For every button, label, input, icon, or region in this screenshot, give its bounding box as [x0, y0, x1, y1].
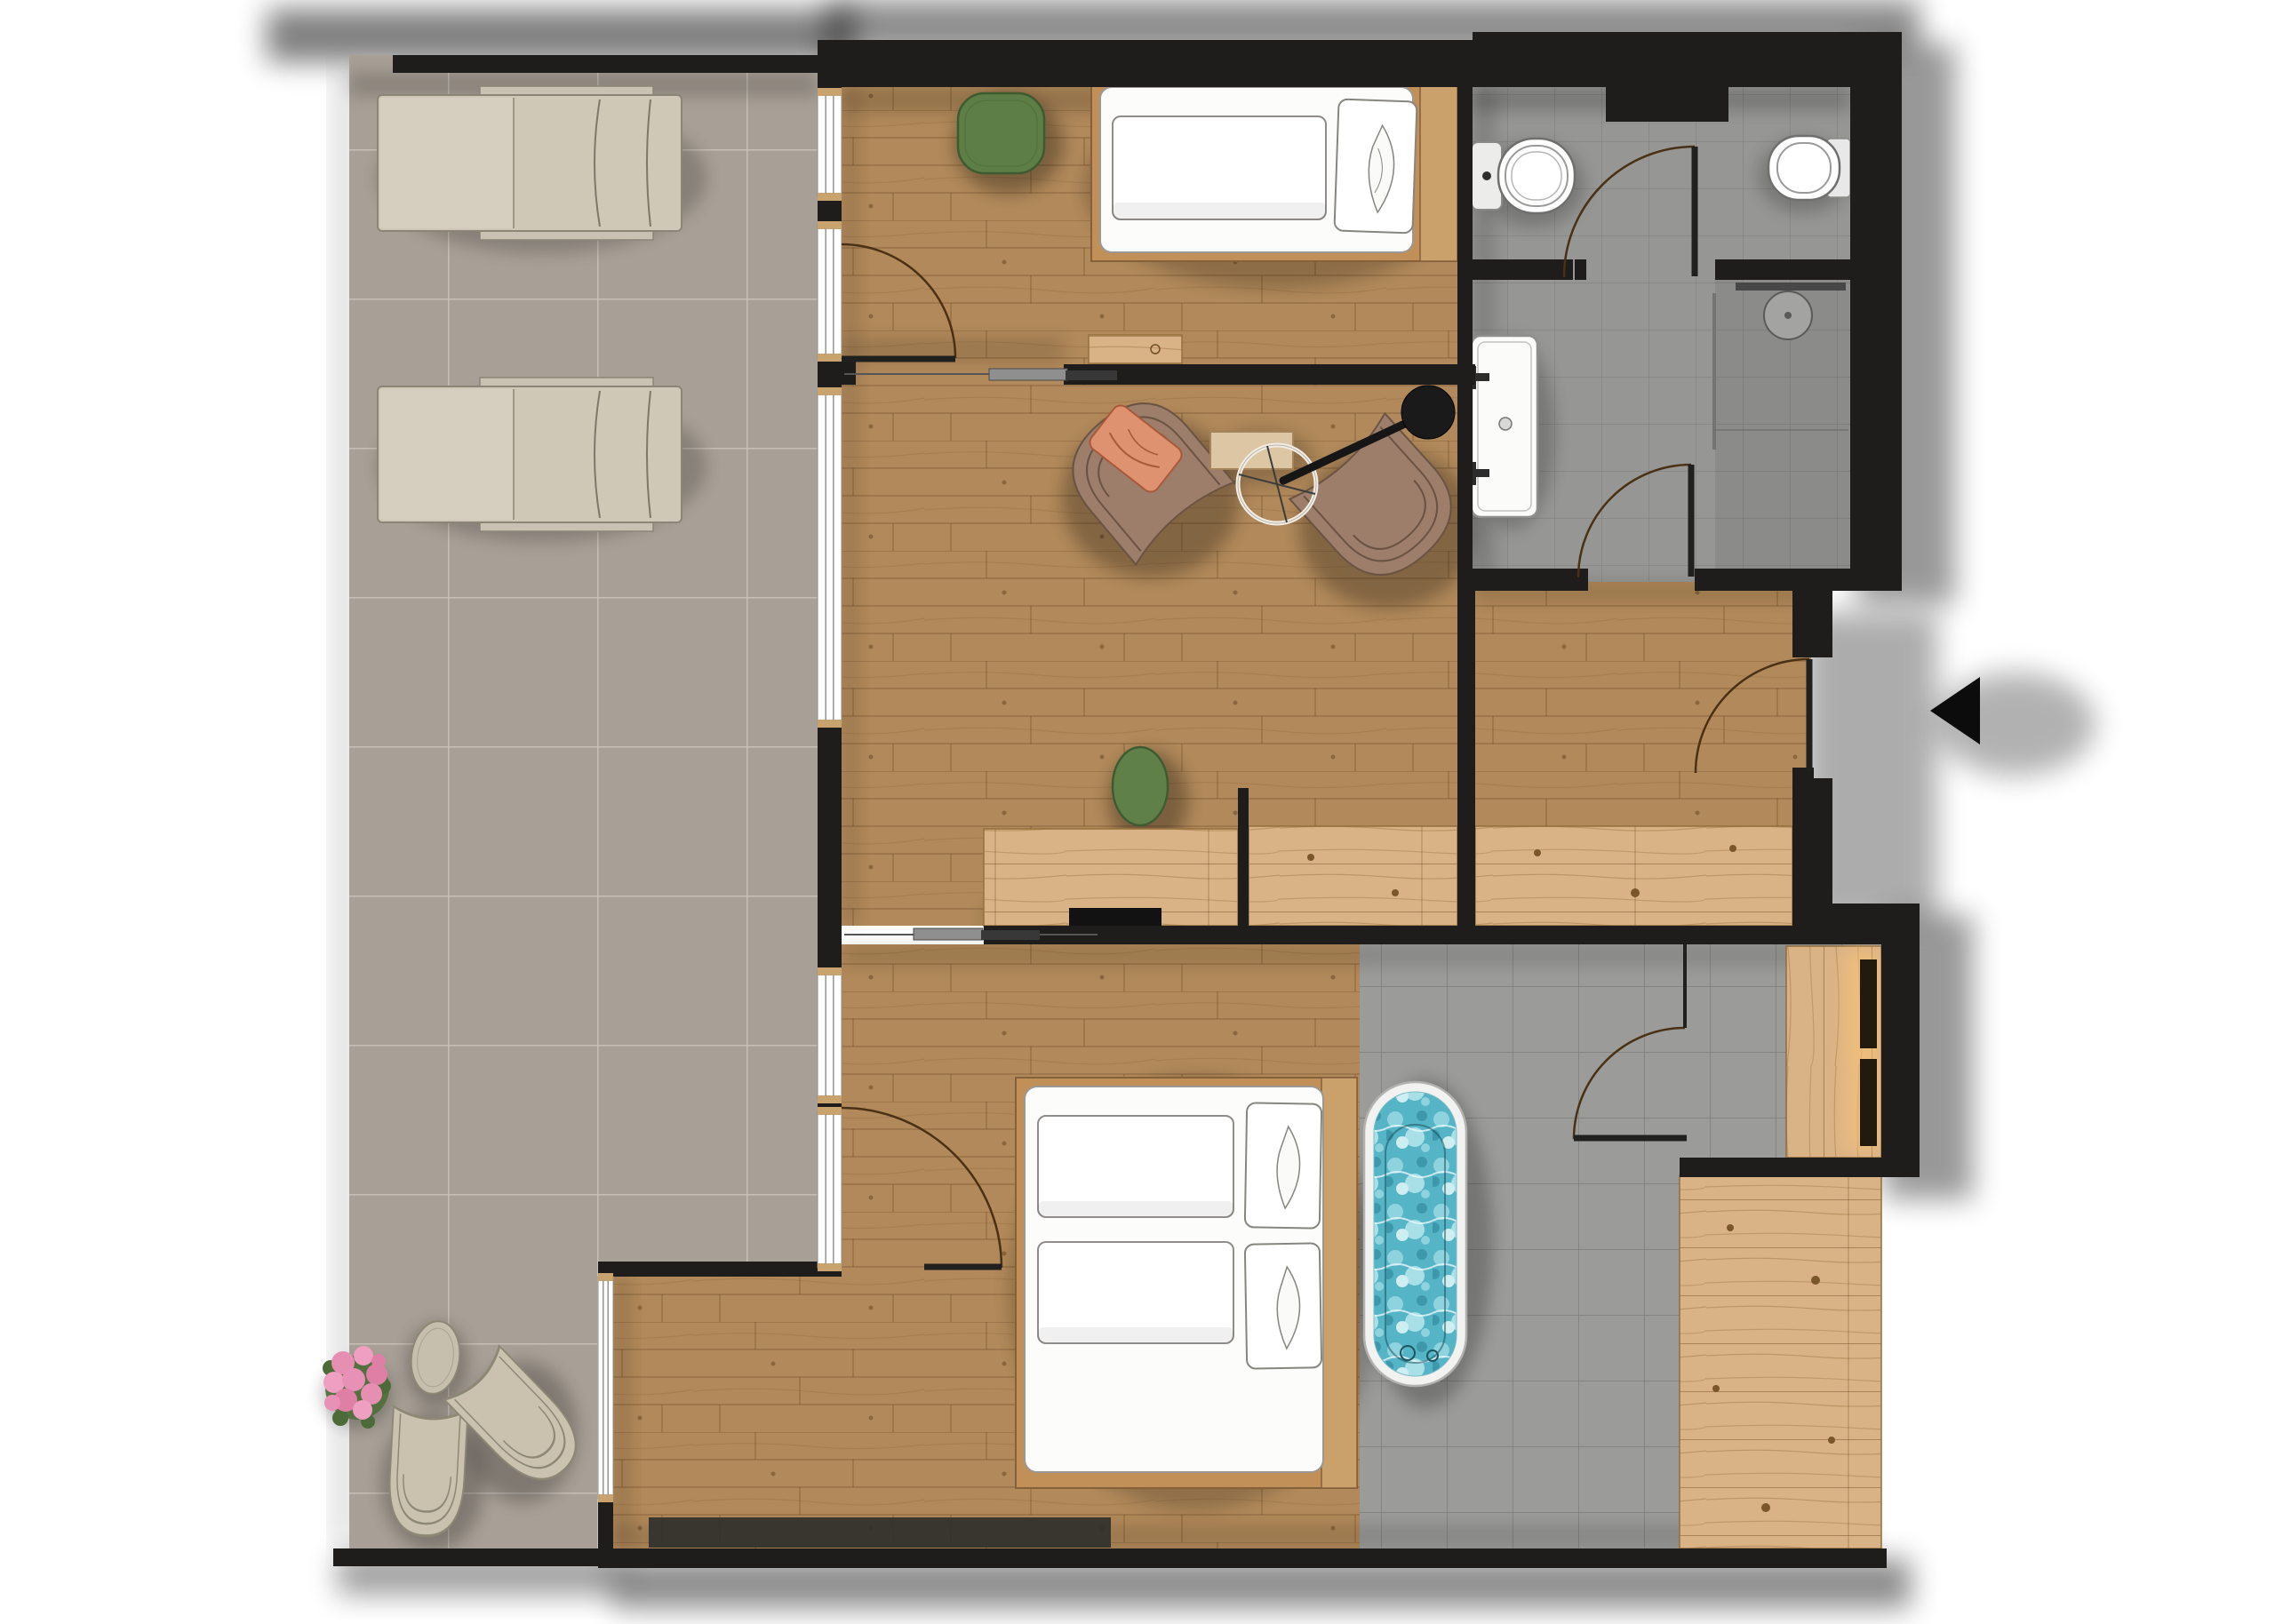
wall-divider1: [1064, 364, 1475, 385]
ao-nook-left: [613, 1277, 631, 1548]
glassdoor-bedroom-bottom: [818, 1107, 842, 1271]
bench-bedroom-bottom: [649, 1517, 1111, 1548]
coffee-table: [1210, 432, 1293, 469]
ao-wellness-top: [1360, 944, 1857, 966]
wall-bath-bottom-left: [1473, 569, 1588, 591]
terrace-chair-1: [387, 1406, 467, 1538]
sideboard-bedroom-top: [1089, 335, 1182, 363]
window-bedroom-bottom-upper: [818, 967, 842, 1103]
sauna-bench: [1680, 1175, 1881, 1548]
vanity-sink: [1463, 336, 1537, 517]
wall-living-right: [1457, 589, 1475, 926]
pouf-living: [1113, 747, 1168, 825]
double-bed-pillow-2: [1245, 1243, 1321, 1368]
wall-entry-step: [1792, 904, 1920, 944]
ao-left-column: [842, 84, 859, 926]
wall-col-living-low: [818, 724, 842, 926]
wall-bath-niche: [1606, 87, 1728, 122]
shower: [1714, 280, 1850, 582]
wall-entry-stub-top: [1792, 647, 1814, 657]
shadow-top-left: [267, 9, 853, 62]
sliding-pocket-2: [981, 930, 1040, 940]
wall-bath-partition-right: [1715, 259, 1850, 280]
wall-bottom-main: [598, 1548, 1887, 1568]
glassdoor-bedroom-top: [818, 221, 842, 362]
wall-entry-lower: [1792, 778, 1832, 904]
ao-bedroom-bottom-top: [842, 944, 1360, 966]
console-living: [984, 829, 1238, 927]
wall-divider1-block: [818, 361, 856, 385]
wall-wellness-bottom: [1680, 1158, 1881, 1177]
wall-top-main: [818, 40, 1473, 87]
wall-bed1-right: [1457, 84, 1473, 589]
wall-b2-col-a: [818, 944, 842, 971]
wall-b2-left-low: [598, 1499, 613, 1552]
wall-step: [598, 1262, 842, 1277]
sauna-wall-panel: [1786, 946, 1881, 1158]
single-bed-pillow: [1334, 100, 1417, 234]
window-living: [818, 387, 842, 728]
wall-right-bathroom: [1850, 32, 1902, 591]
sun-lounger-bottom: [378, 378, 682, 531]
wall-terrace-top: [393, 55, 818, 73]
wall-right-wellness: [1881, 944, 1920, 1177]
toilet: [1472, 139, 1575, 213]
sliding-panel-1: [989, 369, 1067, 380]
wall-divider2: [984, 926, 1792, 944]
window-bedroom-top: [818, 88, 842, 201]
wall-bath-partition-stub: [1575, 259, 1586, 280]
double-bed-pillow-1: [1245, 1103, 1321, 1228]
console-middle: [1249, 826, 1457, 926]
console-hallway: [1475, 826, 1792, 926]
floor-plan-canvas: [0, 0, 2275, 1624]
sun-lounger-top: [378, 86, 682, 240]
floor-plan-page: [0, 0, 2275, 1624]
wall-bath-partition-left: [1473, 259, 1573, 280]
wall-col-mid-1: [818, 197, 842, 225]
sliding-pocket-1: [1066, 370, 1117, 380]
wall-bath-bottom-right: [1695, 569, 1850, 591]
bidet: [1768, 136, 1850, 200]
window-bedroom-bottom-nook: [598, 1273, 613, 1502]
wall-hall-spur: [1238, 788, 1249, 926]
pouf-bedroom-top: [958, 93, 1044, 173]
wall-terrace-bottom: [333, 1548, 598, 1566]
bathtub: [1364, 1082, 1466, 1386]
wall-top-bathroom: [1473, 32, 1902, 87]
wall-divider2-stub: [818, 926, 842, 944]
sliding-panel-2: [914, 928, 983, 940]
